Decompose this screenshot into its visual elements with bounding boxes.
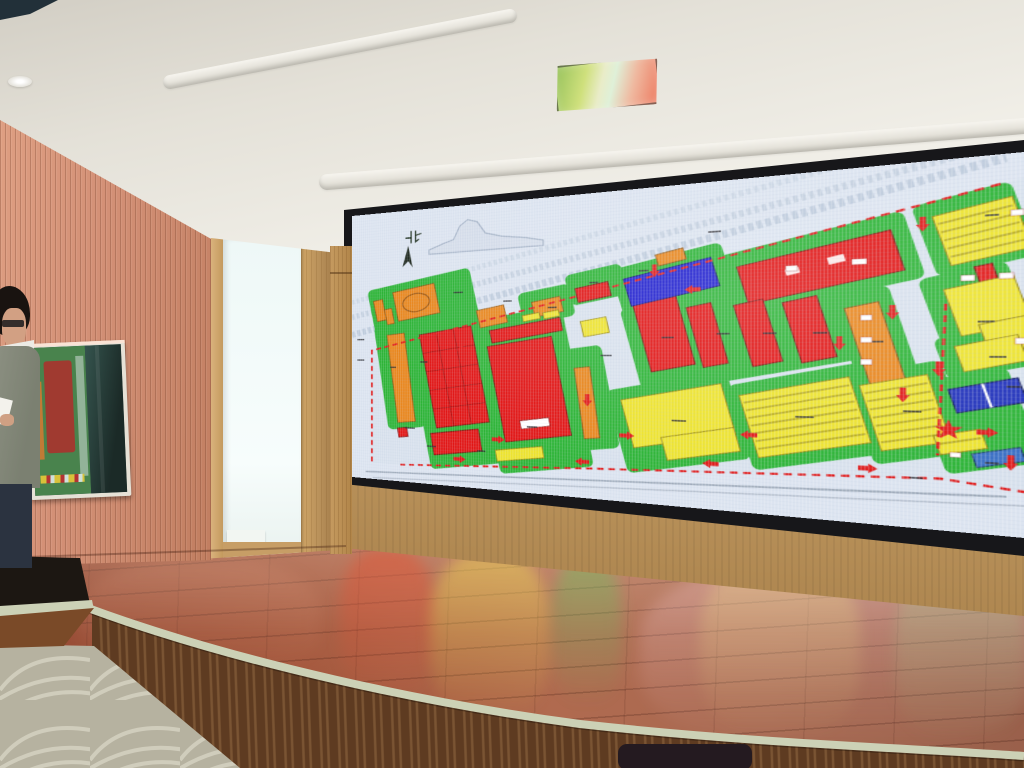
building-r [431,429,482,455]
map-label-mark [548,307,557,309]
map-label-mark [420,361,427,362]
wood-panel-seam [330,272,352,274]
screen-reflection [552,556,622,706]
map-label-mark [717,333,730,335]
factory-site-map [352,152,1024,538]
doorway [211,238,333,560]
presenter-glasses [2,320,24,327]
ceiling-downlight [8,76,32,87]
map-label-mark [978,320,995,322]
presenter-pants [0,484,32,568]
map-label-mark [661,337,673,339]
map-label-mark [1006,386,1021,388]
display-map-red-building [43,360,75,453]
map-label-mark [871,341,884,343]
map-label-box [950,452,961,457]
presenter [0,286,46,576]
led-screen [352,152,1024,538]
map-label-box [1011,209,1024,216]
map-label-box [786,265,798,271]
map-label-mark [357,339,364,340]
presenter-face [2,308,26,346]
screen-reflection [430,552,550,722]
map-label-box [861,337,872,343]
display-glass [85,344,127,493]
door-jamb [211,238,223,560]
map-label-mark [813,332,827,334]
map-label-mark [763,332,777,334]
wall-wood-column [301,238,333,560]
map-label-box [852,258,867,264]
map-label-mark [390,367,396,368]
map-label-mark [989,356,1006,358]
map-label-mark [503,300,511,302]
map-label-mark [600,355,611,357]
map-label-mark [357,359,364,360]
screen-reflection [340,548,435,698]
map-label-box [1015,338,1024,344]
presentation-room-photo [0,0,1024,768]
map-label-box [861,315,872,321]
map-label-box [861,359,872,365]
presenter-hand [0,414,14,426]
map-label-box [961,275,975,281]
door-opening [223,238,301,560]
wall-reflection [80,560,320,680]
wood-panel-strip [330,246,352,554]
building-r [397,427,408,437]
map-label-box [999,272,1014,278]
